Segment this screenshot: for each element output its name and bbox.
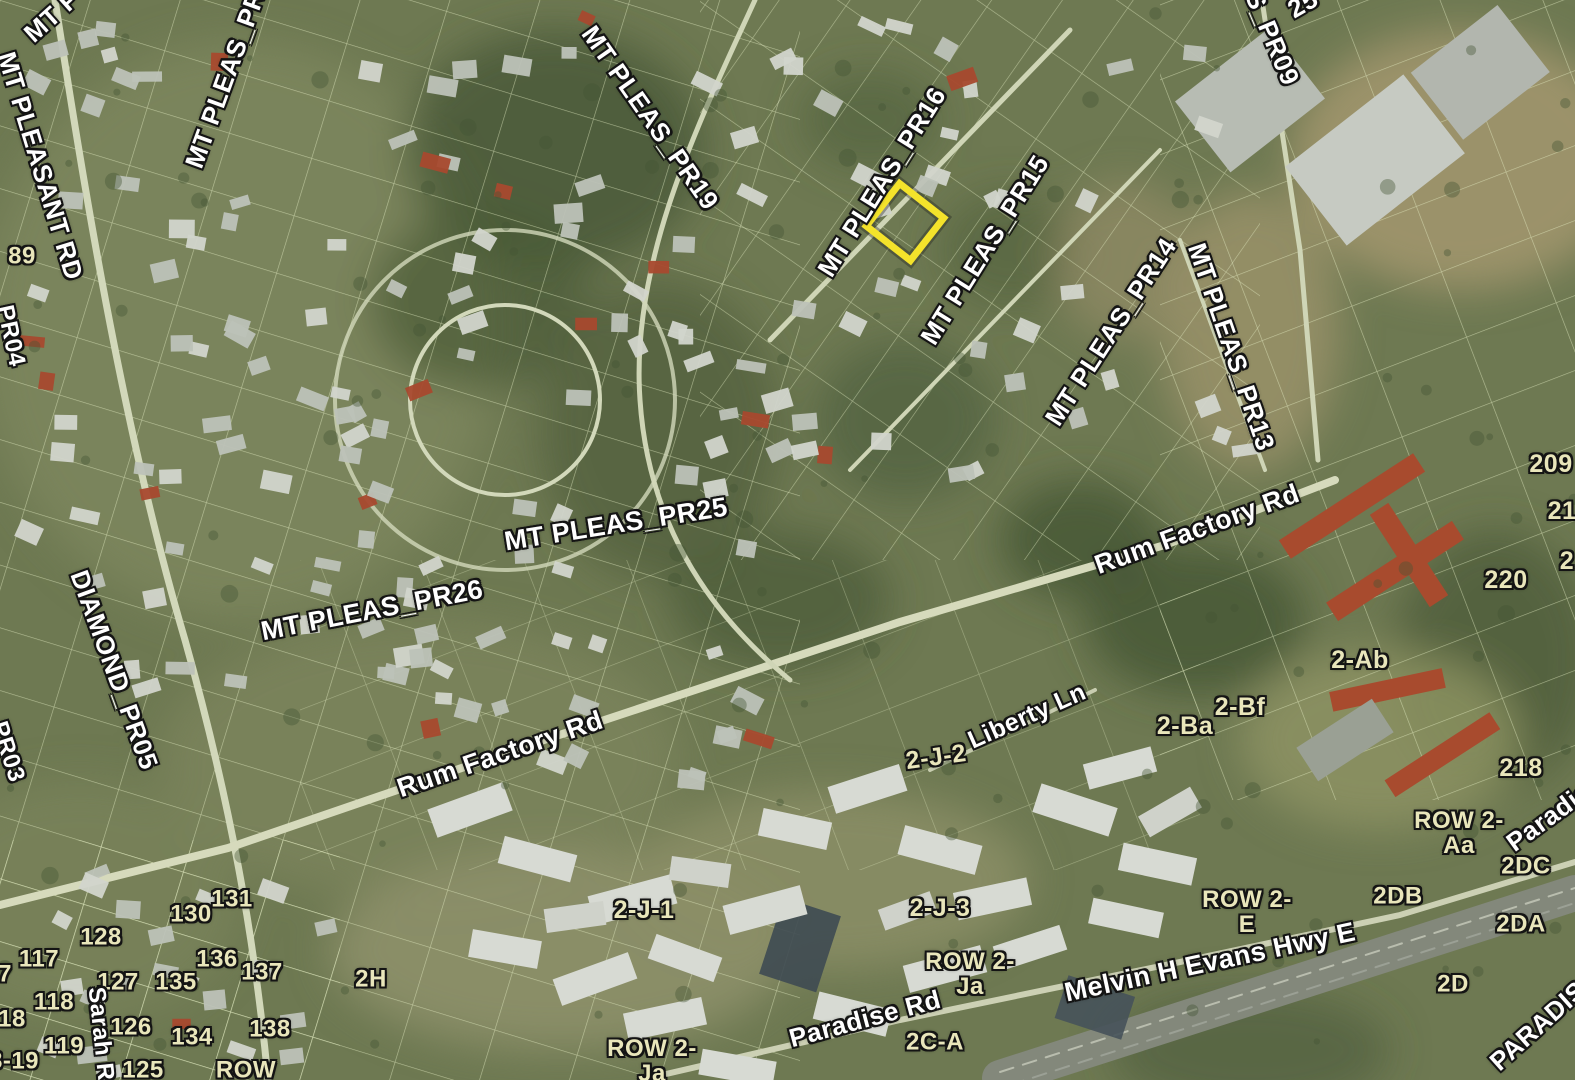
aerial-imagery [0, 0, 1575, 1080]
map-canvas[interactable]: MT PMT PLEASANT RDMT PLEAS_PR289PR04DIAM… [0, 0, 1575, 1080]
